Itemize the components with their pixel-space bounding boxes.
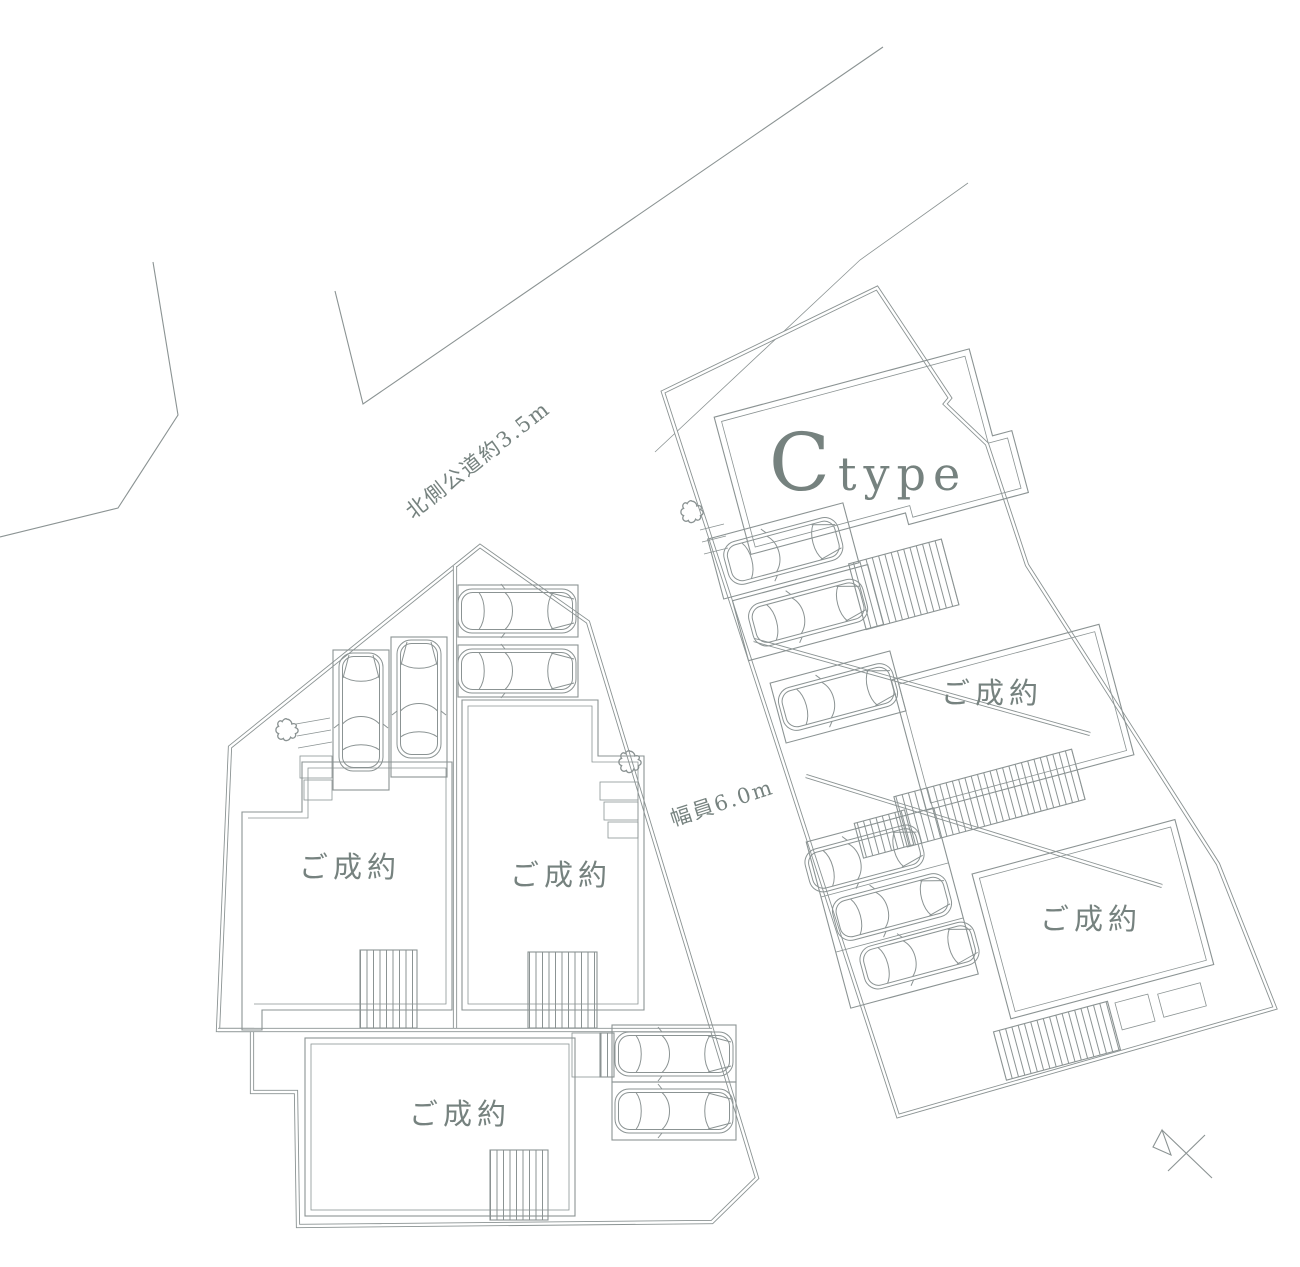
west-road-edge: [0, 262, 178, 537]
parking-space: [391, 637, 447, 777]
stairs-hatch: [849, 539, 959, 630]
lot-status-label: ご成約: [409, 1097, 511, 1131]
lot-type-label: Ctype: [769, 416, 967, 509]
lot-south: ご成約: [305, 1025, 736, 1220]
lot-west: ご成約: [242, 637, 452, 1030]
stairs-hatch: [528, 952, 597, 1028]
porch: [572, 1033, 600, 1077]
lot-status-label: ご成約: [510, 858, 612, 892]
car-icon: [856, 914, 984, 997]
building-outline: [242, 762, 452, 1030]
site-plan: ご成約 ご成約 ご成約: [0, 0, 1300, 1267]
north-arrow-icon: [1153, 1130, 1212, 1178]
tree-icon: [276, 719, 298, 741]
lot-status-label: ご成約: [941, 676, 1043, 710]
entry-steps: [608, 822, 638, 838]
car-icon: [458, 584, 576, 638]
site-plan-page: ご成約 ご成約 ご成約: [0, 0, 1300, 1267]
east-block: Ctype ご成約: [663, 288, 1275, 1116]
car-icon: [774, 656, 902, 739]
west-block: ご成約 ご成約 ご成約: [218, 546, 757, 1226]
stairs-hatch: [490, 1150, 548, 1220]
north-road-label: 北側公道約3.5m: [401, 396, 555, 523]
stairs-hatch: [360, 950, 417, 1028]
entry-steps: [296, 718, 332, 748]
north-road-edge: [335, 47, 883, 404]
porch: [1158, 983, 1207, 1018]
car-icon: [744, 571, 872, 654]
lot-status-label: ご成約: [299, 850, 401, 884]
road-width-label: 幅員6.0m: [667, 775, 776, 831]
car-icon: [334, 653, 388, 771]
parking-space: [612, 1082, 736, 1140]
entry-steps: [600, 782, 638, 800]
porch: [300, 756, 332, 778]
parking-space: [333, 650, 389, 790]
lot-status-label: ご成約: [1040, 902, 1142, 936]
car-icon: [615, 1084, 733, 1138]
lot-center: ご成約: [458, 584, 644, 1028]
lot-c-type: Ctype: [681, 344, 1028, 663]
car-icon: [458, 644, 576, 698]
car-icon: [615, 1027, 733, 1081]
car-icon: [719, 510, 847, 593]
entry-steps: [604, 802, 638, 820]
car-icon: [392, 640, 446, 758]
porch: [1115, 994, 1155, 1030]
